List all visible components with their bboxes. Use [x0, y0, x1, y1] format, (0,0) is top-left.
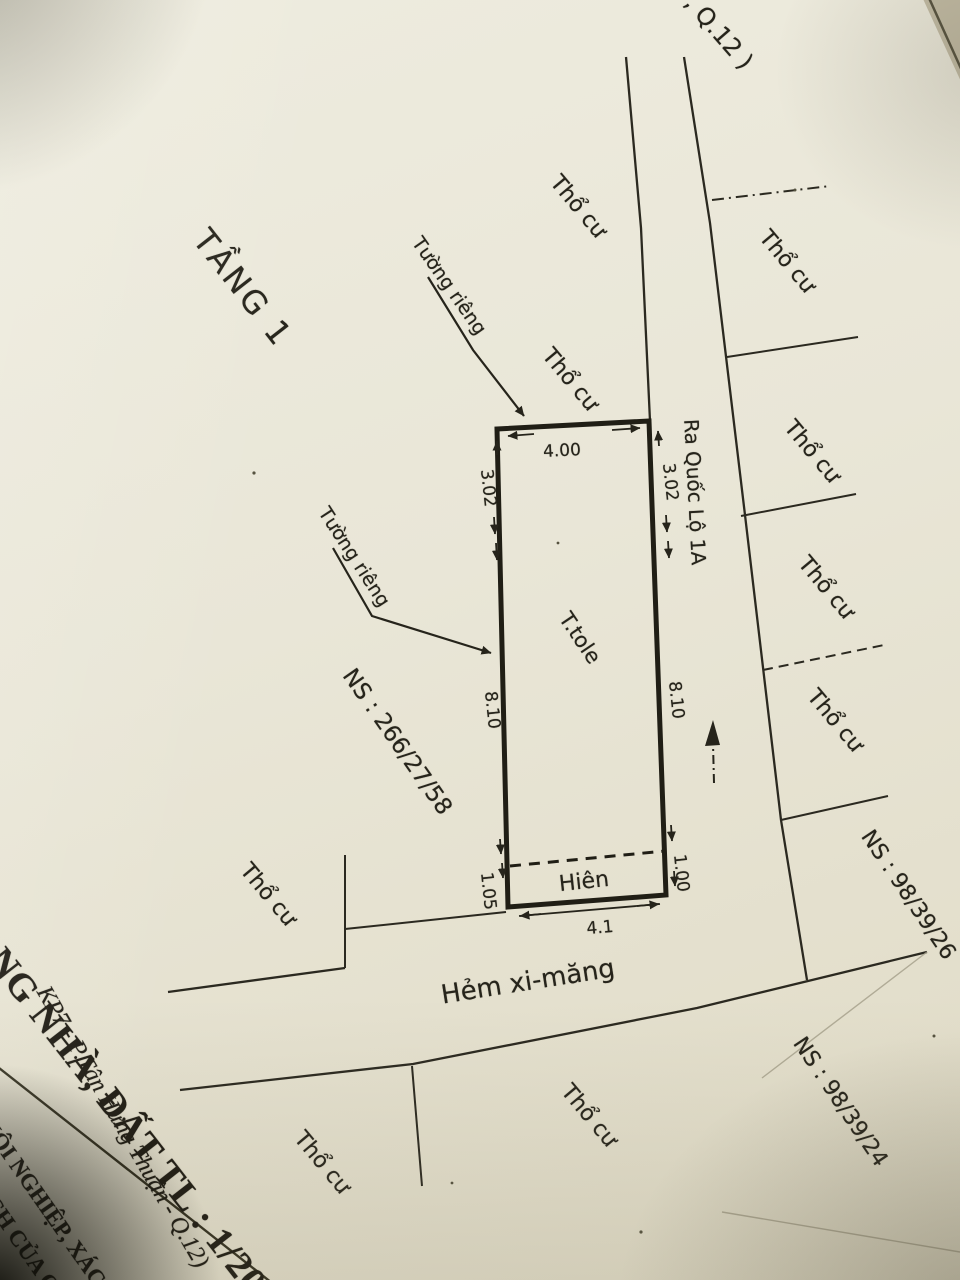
house-outline	[497, 421, 666, 907]
porch-dashed-line	[510, 851, 665, 866]
page-edge-line	[929, 0, 960, 73]
dimension-left-upper: 3.02	[476, 468, 500, 508]
north-arrow	[705, 720, 720, 783]
dimension-right-upper: 3.02	[658, 462, 682, 502]
dimension-top: 4.00	[543, 440, 582, 462]
dimension-arrows	[494, 428, 675, 916]
porch-label: Hiên	[558, 867, 610, 897]
dimension-right-middle: 8.10	[664, 680, 688, 720]
dimension-right-lower: 1.00	[669, 853, 693, 893]
scanned-site-plan-photo: TẦNG 1 , Q.12 ) Thổ cư Thổ cư Thổ cư Thổ…	[0, 0, 960, 1280]
dimension-left-lower: 1.05	[476, 871, 500, 911]
dimension-left-middle: 8.10	[480, 690, 504, 730]
dimension-bottom: 4.1	[586, 917, 615, 939]
